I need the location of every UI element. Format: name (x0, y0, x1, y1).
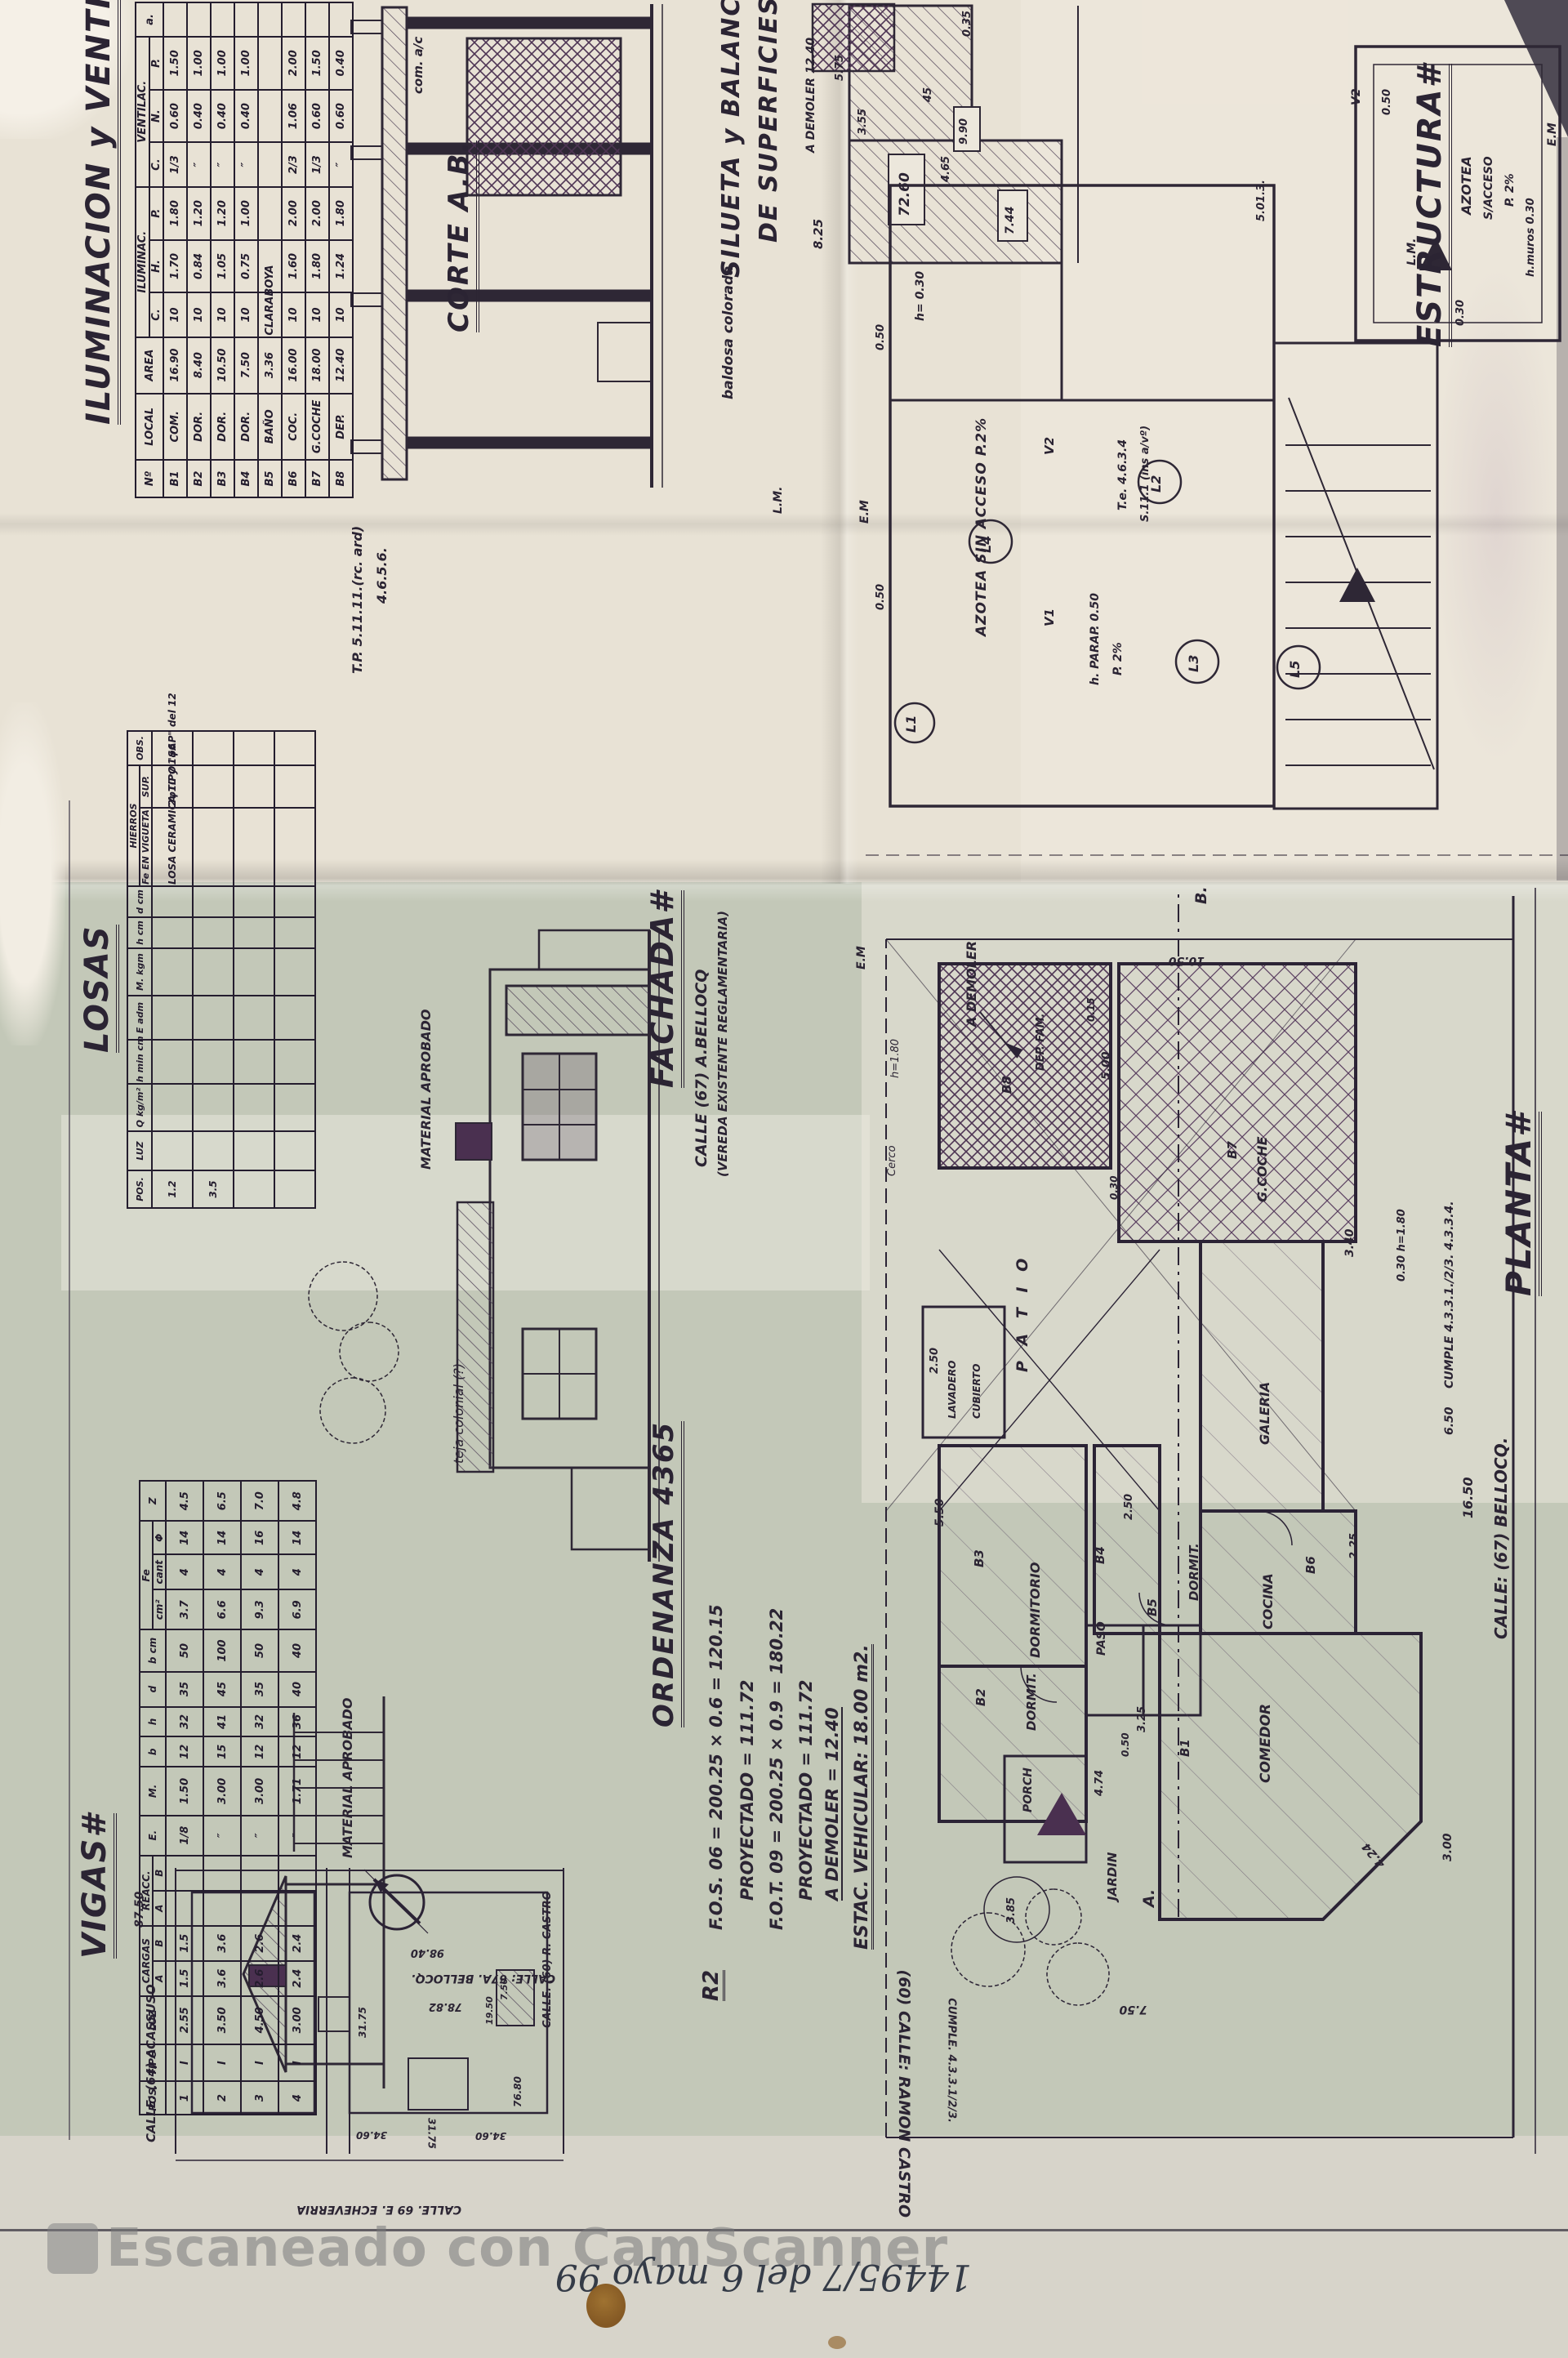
table-cell: 0.60 (329, 90, 353, 143)
dim-015: 0.15 (1086, 997, 1097, 1022)
vigas-table: POS. TIPO LUZ CARGAS REACC. E. M. b h d … (139, 1480, 317, 2115)
estructura-l4: L4 (980, 536, 994, 553)
table-cell: 35 (241, 1672, 278, 1707)
table-cell (211, 2, 234, 37)
col-area: AREA (136, 337, 163, 394)
room-dormit4: DORMIT. (1188, 1543, 1201, 1601)
table-cell (234, 1084, 274, 1131)
table-cell: 2.55 (166, 1996, 203, 2044)
table-cell: COC. (282, 394, 305, 460)
map-dim-3460b: 34.60 (475, 2130, 506, 2141)
col-q: Q kg/m² (127, 1084, 152, 1131)
table-cell: 0.40 (211, 90, 234, 143)
table-cell (234, 948, 274, 996)
col-group-cargas: CARGAS (140, 1926, 153, 1996)
map-dim-3175: 31.75 (358, 2007, 368, 2038)
table-cell (274, 1040, 315, 1084)
silueta-dim-45: 45 (923, 87, 934, 102)
map-dim-3175b: 31.75 (426, 2118, 437, 2149)
corte-note-com: com. a/c (412, 37, 425, 94)
table-cell: 40 (278, 1629, 316, 1671)
calle-bellocq: CALLE: (67) BELLOCQ. (1493, 1438, 1510, 1639)
room-dep: DEP. FAM. (1036, 1014, 1047, 1071)
table-cell (193, 1040, 234, 1084)
table-cell: 45 (203, 1672, 241, 1707)
table-cell: 0.40 (234, 90, 258, 143)
table-cell (166, 1856, 203, 1891)
room-gcoche: G.COCHE (1256, 1136, 1270, 1202)
room-dormit2: DORMIT. (1026, 1673, 1039, 1731)
table-cell: 12 (241, 1736, 278, 1767)
table-cell (193, 1084, 234, 1131)
vigas-title: VIGAS# (78, 1813, 117, 1959)
col-pos: POS. (127, 1170, 152, 1208)
table-cell (329, 2, 353, 37)
table-cell: 2φ10 y 1φ6 (152, 765, 193, 808)
table-cell: 1.70 (163, 240, 187, 293)
silueta-drawing (813, 4, 1078, 263)
table-row (234, 731, 274, 1208)
table-cell: 10 (163, 292, 187, 337)
handwritten-file-note: 14495/7 del 6 mayo 99 (351, 2256, 972, 2298)
table-cell: 4 (278, 1554, 316, 1589)
table-cell: 1/3 (305, 142, 329, 186)
table-cell: 2.4 (278, 1961, 316, 1996)
room-lavadero: LAVADERO (947, 1361, 958, 1419)
iluminacion-title: ILUMINACION y VENTILA# (82, 0, 121, 425)
table-cell (152, 996, 193, 1040)
table-cell: I (166, 2044, 203, 2081)
estructura-dim-035: 0.35 (962, 11, 973, 37)
table-cell (193, 731, 234, 765)
estructura-dim-050a: 0.50 (875, 324, 887, 350)
table-cell: 41 (203, 1707, 241, 1737)
table-row: B6COC.16.00101.602.002/31.062.00 (282, 2, 305, 497)
table-cell: 18.00 (305, 337, 329, 394)
dim-750: 7.50 (1119, 2003, 1147, 2015)
table-cell (274, 1084, 315, 1131)
table-cell: ″ (241, 1816, 278, 1856)
col-group-hierros: HIERROS (127, 765, 140, 886)
estructura-lm: L.M. (1406, 238, 1419, 266)
col-group-iluminac: ILUMINAC. (136, 187, 149, 337)
dim-030: 0.30 (1109, 1175, 1120, 1200)
corte-note-tp: T.P. 5.11.11.(rc. ard) (351, 526, 365, 674)
losas-title: LOSAS (80, 925, 119, 1053)
col-h: h (140, 1707, 166, 1737)
table-cell: 10 (234, 292, 258, 337)
estructura-v2b: V2 (1351, 88, 1363, 105)
proy1-value: 111.72 (737, 1680, 757, 1746)
estructura-em: E.M (1547, 123, 1559, 146)
fos-label: F.O.S. 06 = 200.25 × 0.6 = (706, 1677, 726, 1930)
table-cell (274, 996, 315, 1040)
table-cell (278, 1856, 316, 1891)
estructura-azotea-label: AZOTEA SIN ACCESO P.2% (975, 417, 990, 636)
table-cell: 10 (211, 292, 234, 337)
table-cell: 10.50 (211, 337, 234, 394)
map-dim-7680: 76.80 (513, 2076, 523, 2107)
estructura-l5: L5 (1289, 661, 1303, 678)
table-cell: 3.7 (166, 1589, 203, 1629)
table-cell: 100 (203, 1629, 241, 1671)
table-cell: 40 (278, 1672, 316, 1707)
note-cumple1: CUMPLE 4.3.3.1./2/3. 4.3.3.4. (1444, 1201, 1456, 1389)
table-cell: 10 (305, 292, 329, 337)
table-cell: 14 (278, 1521, 316, 1554)
table-cell (193, 886, 234, 917)
ordenanza-zone: R2 (701, 1970, 725, 2001)
table-cell: I (278, 2044, 316, 2081)
iluminacion-table-body: B1COM.16.90101.701.801/30.601.50B2DOR.8.… (163, 2, 353, 497)
table-cell (258, 37, 282, 90)
table-cell: 32 (166, 1707, 203, 1737)
estructura-l3: L3 (1187, 655, 1201, 672)
col-sup: SUP. (140, 765, 152, 808)
ordenanza-estac: ESTAC. VEHICULAR: 18.00 m2. (853, 1644, 874, 1950)
estructura-title: ESTRUCTURA# (1413, 64, 1452, 347)
table-row: B5BAÑO3.36CLARABOYA (258, 2, 282, 497)
table-cell: 32 (241, 1707, 278, 1737)
dim-250a: 2.50 (929, 1348, 941, 1374)
table-cell: B7 (305, 460, 329, 497)
table-cell: 3.6 (203, 1926, 241, 1961)
table-cell: 12 (166, 1736, 203, 1767)
estructura-p2: P. 2% (1112, 642, 1125, 675)
table-cell: 1.5 (166, 1961, 203, 1996)
note-cumple2: CUMPLE. 4.3.3.1/2/3. (946, 1998, 957, 2123)
table-row: 1.2LOSA CERAMICA TIPO "SAP" del 122φ10 y… (152, 731, 193, 1208)
table-cell: 1.80 (163, 187, 187, 240)
table-cell (193, 765, 234, 808)
dim-385: 3.85 (1006, 1897, 1018, 1923)
dim-474: 4.74 (1094, 1770, 1106, 1796)
room-porch: PORCH (1022, 1767, 1035, 1812)
table-cell (187, 2, 211, 37)
table-cell: 1.00 (187, 37, 211, 90)
estructura-dim-5013: 5.01.3. (1256, 180, 1267, 221)
estructura-azotea2-b: S/ACCESO (1483, 156, 1495, 220)
table-cell: 1.60 (282, 240, 305, 293)
table-cell: 1.00 (234, 37, 258, 90)
estructura-hparap: h. PARAP. 0.50 (1089, 593, 1102, 685)
table-cell (193, 917, 234, 948)
table-row: B7G.COCHE18.00101.802.001/30.601.50 (305, 2, 329, 497)
col-group-fe: Fe (140, 1521, 153, 1629)
estructura-hmuros: h.muros 0.30 (1526, 198, 1537, 277)
col-fe: Fe EN VIGUETA (140, 808, 152, 886)
table-cell: 1.00 (211, 37, 234, 90)
room-galeria: GALERIA (1258, 1382, 1272, 1445)
table-row: B2DOR.8.40100.841.20″0.401.00 (187, 2, 211, 497)
table-cell (193, 1131, 234, 1170)
table-cell: 1.05 (211, 240, 234, 293)
table-cell: 6.5 (203, 1481, 241, 1521)
silueta-dim-465: 4.65 (941, 156, 952, 182)
table-cell: 12 (278, 1736, 316, 1767)
col-reacc-a: A (153, 1891, 166, 1926)
table-row: B4DOR.7.50100.751.00″0.401.00 (234, 2, 258, 497)
table-cell (234, 731, 274, 765)
table-cell: 1 (166, 2081, 203, 2115)
iluminacion-ventilacion-table: Nº LOCAL AREA ILUMINAC. VENTILAC. a. C. … (135, 2, 354, 498)
table-cell: 1.20 (211, 187, 234, 240)
table-cell (234, 1131, 274, 1170)
map-dim-3460: 34.60 (356, 2129, 387, 2140)
table-cell: 9.3 (241, 1589, 278, 1629)
losas-table-body: 1.2LOSA CERAMICA TIPO "SAP" del 122φ10 y… (152, 731, 315, 1208)
table-cell: 35 (166, 1672, 203, 1707)
table-cell: B5 (258, 460, 282, 497)
dim-225: 2.25 (1349, 1533, 1361, 1559)
col-n: N. (149, 90, 163, 143)
camscanner-logo-icon (47, 2223, 98, 2274)
table-cell: 14 (203, 1521, 241, 1554)
estructura-azotea2-c: P. 2% (1504, 173, 1517, 207)
table-cell: 2.00 (282, 187, 305, 240)
fachada-material-1: MATERIAL APROBADO (420, 1009, 434, 1170)
table-row (274, 731, 315, 1208)
table-cell: 3 (241, 2081, 278, 2115)
table-cell: 2 (203, 2081, 241, 2115)
table-cell (274, 1170, 315, 1208)
col-luz: LUZ (127, 1131, 152, 1170)
table-cell: 10 (187, 292, 211, 337)
col-d: d (140, 1672, 166, 1707)
table-cell (234, 1040, 274, 1084)
table-cell: 1.50 (163, 37, 187, 90)
table-cell: 4.5 (166, 1481, 203, 1521)
table-cell (234, 996, 274, 1040)
table-cell: B2 (187, 460, 211, 497)
ordenanza-fot: F.O.T. 09 = 200.25 × 0.9 = 180.22 (768, 1608, 786, 1930)
proy2-label: PROYECTADO = (796, 1752, 816, 1901)
map-dim-1950: 19.50 (485, 1996, 495, 2025)
ordenanza-demoler: A DEMOLER = 12.40 (823, 1707, 843, 1901)
col-tipo: TIPO (140, 2044, 166, 2081)
table-cell (152, 886, 193, 917)
table-cell (234, 1170, 274, 1208)
table-cell: 6.6 (203, 1589, 241, 1629)
table-cell: 6.9 (278, 1589, 316, 1629)
table-cell: 4 (203, 1554, 241, 1589)
table-row: 3I4.502.62.6″3.00123235509.34167.0 (241, 1481, 278, 2115)
ordenanza-title: ORDENANZA 4365 (650, 1421, 684, 1727)
table-cell: 4 (241, 1554, 278, 1589)
room-patio: P A T I O (1015, 1254, 1031, 1372)
table-cell: 0.60 (305, 90, 329, 143)
table-cell: 50 (166, 1629, 203, 1671)
table-cell: 7.50 (234, 337, 258, 394)
table-cell: 36 (278, 1707, 316, 1737)
table-cell: 14 (166, 1521, 203, 1554)
corte-note-baldosa: baldosa colorada (722, 265, 737, 399)
estructura-em3: E.M (856, 946, 868, 969)
table-cell: CLARABOYA (258, 292, 282, 337)
table-cell: I (241, 2044, 278, 2081)
col-no: Nº (136, 460, 163, 497)
silueta-area-744: 7.44 (1004, 206, 1017, 234)
table-cell: 1.20 (187, 187, 211, 240)
marker-b: B. (1194, 886, 1210, 904)
dim-650: 6.50 (1444, 1406, 1456, 1435)
table-cell: 3.50 (203, 1996, 241, 2044)
calle-ramon-castro: (60) CALLE: RAMON CASTRO (895, 1970, 911, 2218)
silueta-area-7260: 72.60 (898, 172, 913, 216)
table-cell (258, 187, 282, 240)
table-cell (278, 1891, 316, 1926)
col-cargas-b: B (153, 1926, 166, 1961)
col-m: M. (140, 1767, 166, 1815)
table-cell: I (203, 2044, 241, 2081)
col-b: b (140, 1736, 166, 1767)
table-cell: 4.50 (241, 1996, 278, 2044)
col-fi: Φ (153, 1521, 166, 1554)
drawing-upright-layer: ILUMINACION y VENTILA# CORTE A.B. com. a… (0, 0, 1568, 2358)
table-row: 1I2.551.51.51/81.50123235503.74144.5 (166, 1481, 203, 2115)
table-cell: 0.60 (163, 90, 187, 143)
table-cell: 4.8 (278, 1481, 316, 1521)
table-cell: BAÑO (258, 394, 282, 460)
col-p2: P. (149, 37, 163, 90)
demoler-label: A DEMOLER = (822, 1767, 842, 1901)
table-cell: 3.6 (203, 1961, 241, 1996)
table-cell: 1.80 (305, 240, 329, 293)
note-cerco: Cerco (887, 1145, 898, 1176)
table-cell: 3.00 (203, 1767, 241, 1815)
table-cell: 7.0 (241, 1481, 278, 1521)
table-cell: 1.06 (282, 90, 305, 143)
vigas-table-header: POS. TIPO LUZ CARGAS REACC. E. M. b h d … (140, 1481, 166, 2115)
table-cell (274, 765, 315, 808)
table-row: B3DOR.10.50101.051.20″0.401.00 (211, 2, 234, 497)
table-cell: 0.84 (187, 240, 211, 293)
silueta-ademoler: A DEMOLER 12.40 (805, 38, 817, 153)
silueta-title-line2: DE SUPERFICIES (756, 0, 782, 243)
table-cell: 0.40 (187, 90, 211, 143)
table-cell (282, 2, 305, 37)
vigas-table-body: 1I2.551.51.51/81.50123235503.74144.52I3.… (166, 1481, 316, 2115)
room-b1: B1 (1179, 1739, 1192, 1757)
table-cell (305, 2, 329, 37)
table-cell (203, 1891, 241, 1926)
planta-drawing (886, 888, 1535, 2154)
fachada-material-2: MATERIAL APROBADO (341, 1697, 355, 1858)
estructura-h030: h= 0.30 (915, 271, 927, 321)
table-cell: DOR. (234, 394, 258, 460)
table-cell (274, 886, 315, 917)
table-row: B8DEP.12.40101.241.80″0.600.40 (329, 2, 353, 497)
fachada-teja: teja colonial (?) (452, 1363, 466, 1464)
dim-050: 0.50 (1120, 1732, 1131, 1757)
table-cell: 10 (329, 292, 353, 337)
table-cell: 3.00 (278, 1996, 316, 2044)
col-e: E adm (127, 996, 152, 1040)
table-cell (274, 917, 315, 948)
map-calle-castro: CALLE. (60) R. CASTRO (542, 1891, 554, 2028)
fachada-sub2: (VEREDA EXISTENTE REGLAMENTARIA) (717, 911, 730, 1177)
table-cell: 8.40 (187, 337, 211, 394)
map-dim-750: 7.50 (500, 1978, 510, 2000)
corte-note-tp2: 4.6.5.6. (376, 547, 390, 604)
estructura-v2: V2 (1044, 437, 1057, 455)
estructura-te2: S.11.1 (ins a/vº) (1140, 426, 1151, 522)
col-c2: C. (149, 142, 163, 186)
table-cell: LOSA CERAMICA TIPO "SAP" del 12 (152, 808, 193, 886)
table-cell: 10 (282, 292, 305, 337)
table-cell (234, 886, 274, 917)
table-cell: B8 (329, 460, 353, 497)
table-cell: 4 (278, 2081, 316, 2115)
table-cell: 1.80 (329, 187, 353, 240)
dim-1050: 10.50 (1169, 954, 1205, 966)
table-cell (258, 2, 282, 37)
fachada-title: FACHADA# (647, 890, 684, 1088)
room-comedor: COMEDOR (1259, 1704, 1274, 1783)
table-cell: DEP. (329, 394, 353, 460)
table-cell (166, 1891, 203, 1926)
fachada-drawing (309, 930, 659, 1562)
table-cell (274, 731, 315, 765)
estructura-dim-050b: 0.50 (875, 584, 887, 610)
room-jardin: JARDIN (1107, 1852, 1120, 1901)
ordenanza-proy1: PROYECTADO = 111.72 (738, 1680, 756, 1901)
table-cell: 0.40 (329, 37, 353, 90)
table-cell: 2.4 (278, 1926, 316, 1961)
room-b3: B3 (973, 1549, 987, 1567)
table-cell (234, 765, 274, 808)
col-h: H. (149, 240, 163, 293)
table-cell: 1.50 (305, 37, 329, 90)
corte-title: CORTE A.B. (445, 140, 479, 332)
table-cell (152, 948, 193, 996)
iluminacion-table-header: Nº LOCAL AREA ILUMINAC. VENTILAC. a. C. … (136, 2, 163, 497)
table-cell: DOR. (211, 394, 234, 460)
estructura-te: T.e. 4.6.3.4 (1117, 439, 1129, 510)
room-dormitorio: DORMITORIO (1029, 1562, 1043, 1658)
map-calle-bellocq: CALLE: 67A. BELLOCQ. (411, 1972, 555, 1984)
table-cell: 0.75 (234, 240, 258, 293)
ordenanza-fos: F.O.S. 06 = 200.25 × 0.6 = 120.15 (707, 1604, 725, 1930)
table-cell: 3.5 (193, 1170, 234, 1208)
col-cm2: cm² (153, 1589, 166, 1629)
silueta-dim-825: 8.25 (813, 219, 826, 249)
table-cell: ″ (278, 1816, 316, 1856)
table-cell: B4 (234, 460, 258, 497)
room-b5: B5 (1147, 1598, 1160, 1616)
table-cell (152, 1040, 193, 1084)
table-cell: 16.90 (163, 337, 187, 394)
dim-300: 3.00 (1442, 1833, 1454, 1861)
table-cell (258, 90, 282, 143)
col-e: E. (140, 1816, 166, 1856)
col-obs2: OBS. (127, 731, 152, 765)
table-cell: 3.00 (241, 1767, 278, 1815)
planta-ademoler: A DEMOLER (965, 941, 979, 1027)
planta-title: PLANTA# (1501, 1112, 1542, 1296)
corte-section-drawing (351, 4, 662, 488)
table-cell: ″ (203, 1816, 241, 1856)
table-cell: 1.2 (152, 1170, 193, 1208)
room-b6: B6 (1305, 1556, 1318, 1574)
table-cell: G.COCHE (305, 394, 329, 460)
fot-value: 180.22 (767, 1608, 786, 1674)
table-cell: ″ (329, 142, 353, 186)
table-cell: 15 (203, 1736, 241, 1767)
col-cant: cant (153, 1554, 166, 1589)
table-cell: ″ (234, 142, 258, 186)
table-cell: B6 (282, 460, 305, 497)
